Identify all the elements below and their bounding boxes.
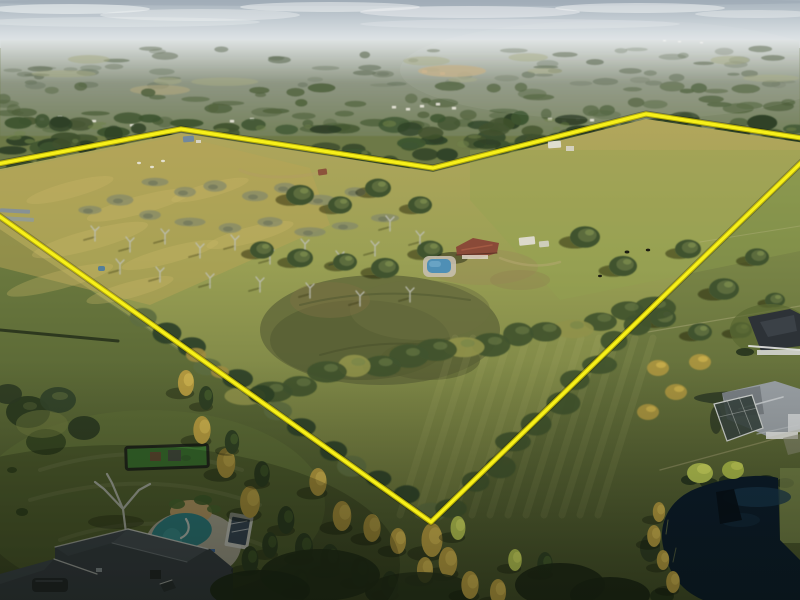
aerial-photo-canvas xyxy=(0,0,800,600)
aerial-property-photo xyxy=(0,0,800,600)
